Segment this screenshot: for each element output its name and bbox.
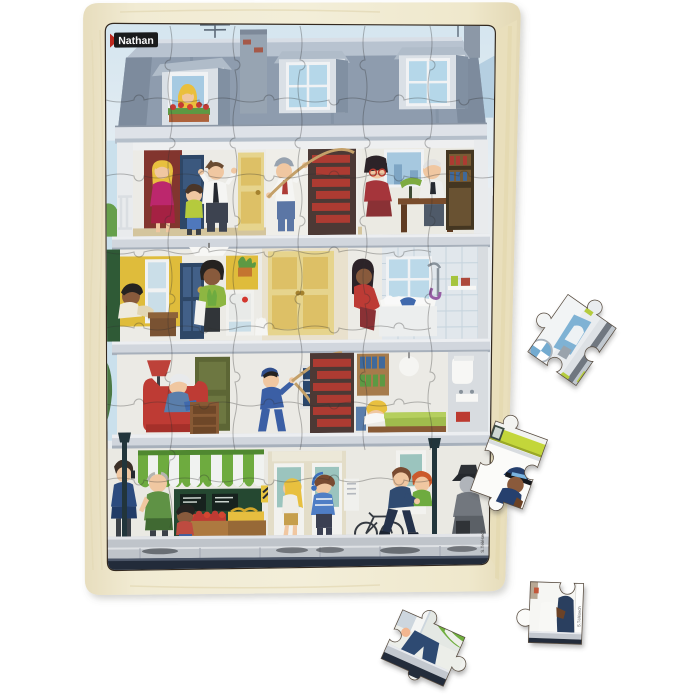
svg-text:S.Télésech: S.Télésech <box>576 605 582 627</box>
